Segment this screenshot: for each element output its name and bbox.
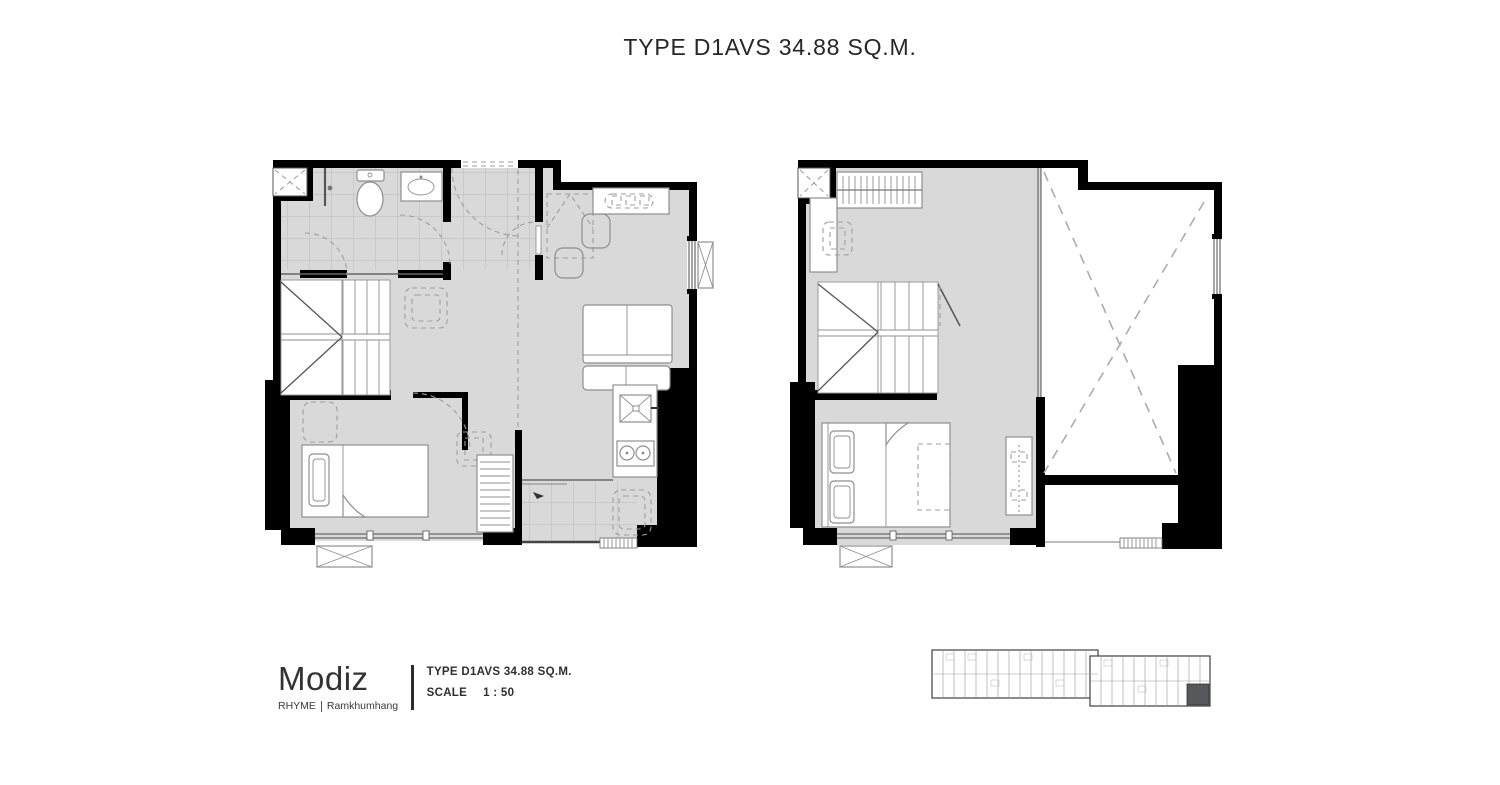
tv-console [1006,437,1032,515]
ac-unit [317,546,372,567]
upper-floor-plan [790,150,1240,570]
brand-location: Ramkhumhang [327,700,398,712]
title-block: Modiz RHYME Ramkhumhang TYPE D1AVS 34.88… [278,662,572,712]
key-plan [928,640,1218,715]
brand-subtitle: RHYME Ramkhumhang [278,700,398,712]
louver-vent [600,538,637,548]
floor-plan-sheet: TYPE D1AVS 34.88 SQ.M. [0,0,1500,785]
highlighted-unit [1187,684,1209,705]
hanger-wardrobe [837,172,922,208]
door-leaf [536,226,541,254]
unit-type-label: TYPE D1AVS 34.88 SQ.M. [427,666,572,678]
sink-icon [401,172,442,201]
wardrobe-shelf [477,455,513,532]
window-right [1212,239,1224,294]
single-bed [302,445,428,517]
plan-meta: TYPE D1AVS 34.88 SQ.M. SCALE1 : 50 [427,662,572,699]
balcony-tiles [522,482,637,541]
brand-logo: Modiz [278,662,398,695]
double-bed [822,423,950,527]
shower-head-icon [328,186,333,191]
ac-unit [840,546,892,567]
kitchen-counter [613,385,659,477]
page-title: TYPE D1AVS 34.88 SQ.M. [0,34,1500,61]
ac-unit [698,242,713,288]
service-shaft [798,168,830,198]
window-right [687,241,699,289]
titleblock-divider [411,665,414,710]
staircase [281,280,390,395]
brand-divider [321,701,322,712]
brand-series: RHYME [278,700,316,712]
brand-block: Modiz RHYME Ramkhumhang [278,662,398,712]
louver-vent [1045,538,1162,548]
lower-floor-plan [265,150,715,570]
sofa [583,305,672,363]
scale-label: SCALE1 : 50 [427,687,572,699]
service-shaft [273,168,307,196]
console-counter [593,188,669,214]
toilet-icon [357,170,384,216]
